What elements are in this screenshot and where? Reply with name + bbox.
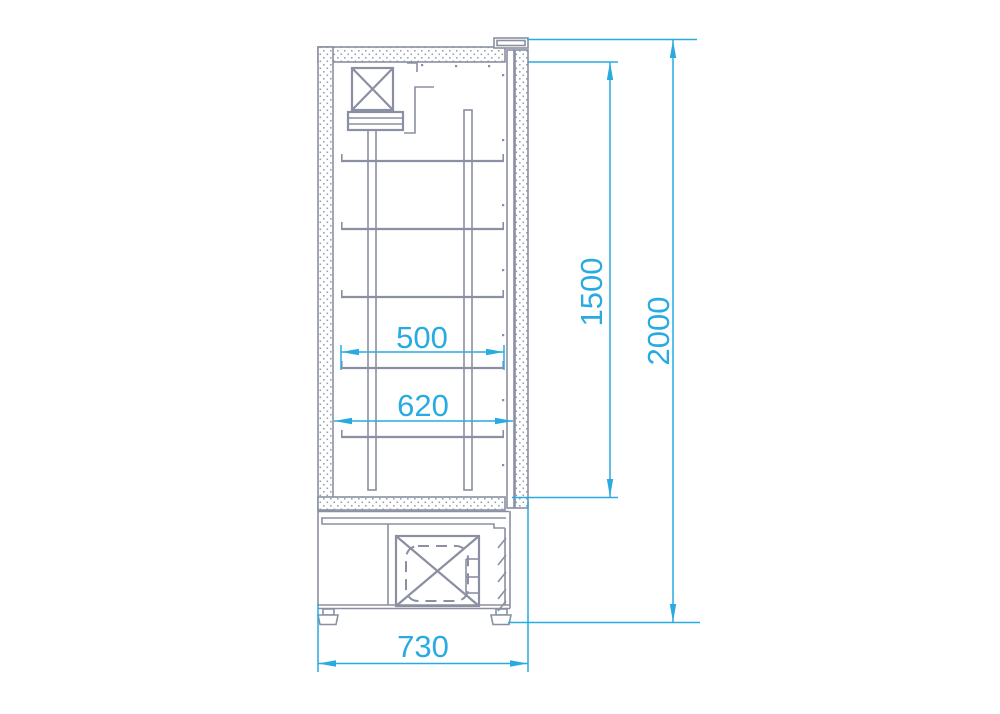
mounting-bracket-small xyxy=(407,63,417,72)
cabinet-side-view-drawing: 500 620 1500 2000 730 xyxy=(0,0,1000,714)
shelf xyxy=(341,361,504,368)
adjustable-foot-left xyxy=(318,609,338,625)
arrow-up-icon xyxy=(670,40,676,58)
condensing-unit xyxy=(396,536,479,606)
dimension-2000: 2000 xyxy=(508,40,700,623)
shelf-support-post xyxy=(464,110,472,490)
air-duct-bracket xyxy=(404,87,434,133)
arrow-down-icon xyxy=(670,604,676,622)
shelf xyxy=(341,154,504,161)
arrow-up-icon xyxy=(607,62,613,80)
technical-drawing-canvas: 500 620 1500 2000 730 xyxy=(0,0,1000,714)
arrow-down-icon xyxy=(607,479,613,497)
arrow-left-icon xyxy=(341,349,359,355)
arrow-right-icon xyxy=(510,660,528,666)
door-panel xyxy=(515,50,528,508)
door-inner-liner xyxy=(507,50,514,508)
machine-compartment xyxy=(318,510,510,611)
dim-label-overall-height: 2000 xyxy=(641,297,676,366)
dim-label-overall-depth: 730 xyxy=(397,629,449,664)
dim-label-door-height: 1500 xyxy=(574,258,609,327)
drip-tray xyxy=(348,112,403,130)
shelf xyxy=(341,222,504,229)
dimension-620: 620 xyxy=(334,388,513,424)
insulated-wall-bottom xyxy=(318,497,505,510)
shelf xyxy=(341,290,504,297)
dimension-500: 500 xyxy=(341,320,504,370)
arrow-left-icon xyxy=(318,660,336,666)
evaporator-unit xyxy=(348,63,434,133)
dim-label-interior-depth: 620 xyxy=(397,388,449,423)
arrow-right-icon xyxy=(486,349,504,355)
compartment-step-line xyxy=(322,518,505,528)
dimension-730: 730 xyxy=(318,501,528,672)
insulated-wall-top xyxy=(318,47,505,62)
arrow-left-icon xyxy=(334,418,352,424)
hinge-cover xyxy=(494,38,528,48)
dim-label-shelf-width: 500 xyxy=(396,320,448,355)
shelf xyxy=(341,430,504,437)
insulated-wall-left xyxy=(318,47,333,510)
cabinet-carcass xyxy=(318,47,505,510)
